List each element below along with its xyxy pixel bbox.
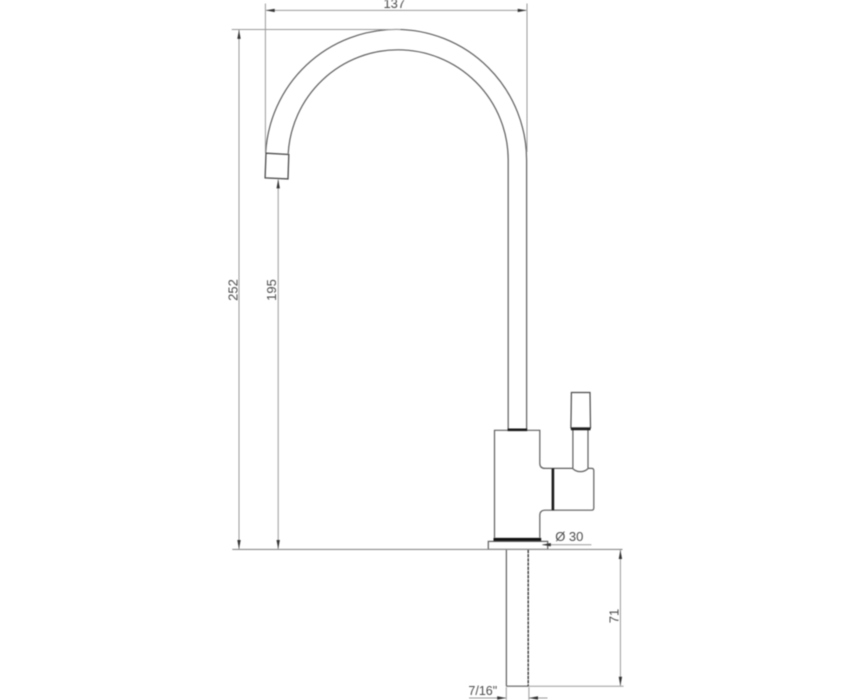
svg-text:Ø 30: Ø 30 (555, 529, 583, 544)
svg-text:71: 71 (606, 609, 621, 623)
svg-text:252: 252 (225, 279, 240, 301)
svg-text:7/16": 7/16" (468, 684, 497, 698)
svg-text:137: 137 (383, 0, 405, 11)
svg-text:195: 195 (264, 279, 279, 301)
